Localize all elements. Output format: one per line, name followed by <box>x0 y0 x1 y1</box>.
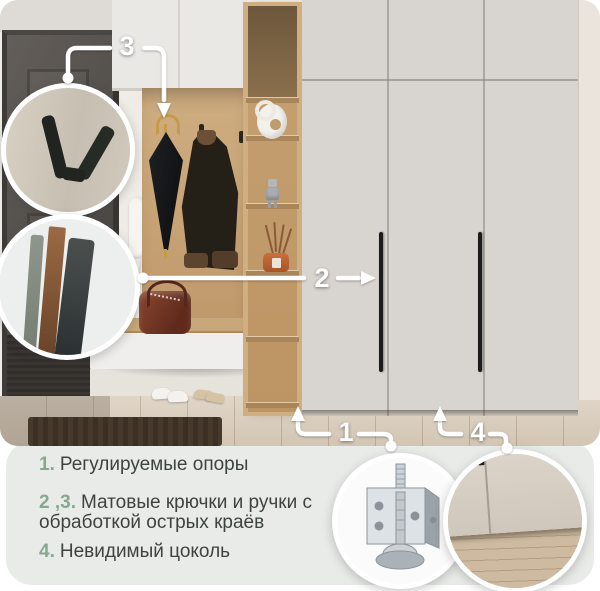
callout-4-arrow <box>433 406 447 421</box>
callout-1-arrow <box>291 406 305 421</box>
callout-2-arrow <box>361 271 376 285</box>
callout-1-line <box>298 422 329 434</box>
callout-4-label: 4 <box>462 417 494 447</box>
callout-3-label: 3 <box>111 31 143 61</box>
callout-3-dot <box>63 73 74 84</box>
callout-1-label: 1 <box>330 417 362 447</box>
callout-3-arrow <box>157 103 171 118</box>
callout-lines <box>0 0 600 591</box>
callout-1-line <box>359 434 391 443</box>
callout-3-line <box>144 48 164 100</box>
callout-2-dot <box>138 273 149 284</box>
product-card: 1.Регулируемые опоры 2 ,3.Матовые крючки… <box>0 0 600 591</box>
callout-4-dot <box>502 443 513 454</box>
callout-2-label: 2 <box>306 263 338 293</box>
callout-4-line <box>440 422 461 434</box>
callout-1-dot <box>386 441 397 452</box>
callout-3-line <box>68 48 110 74</box>
